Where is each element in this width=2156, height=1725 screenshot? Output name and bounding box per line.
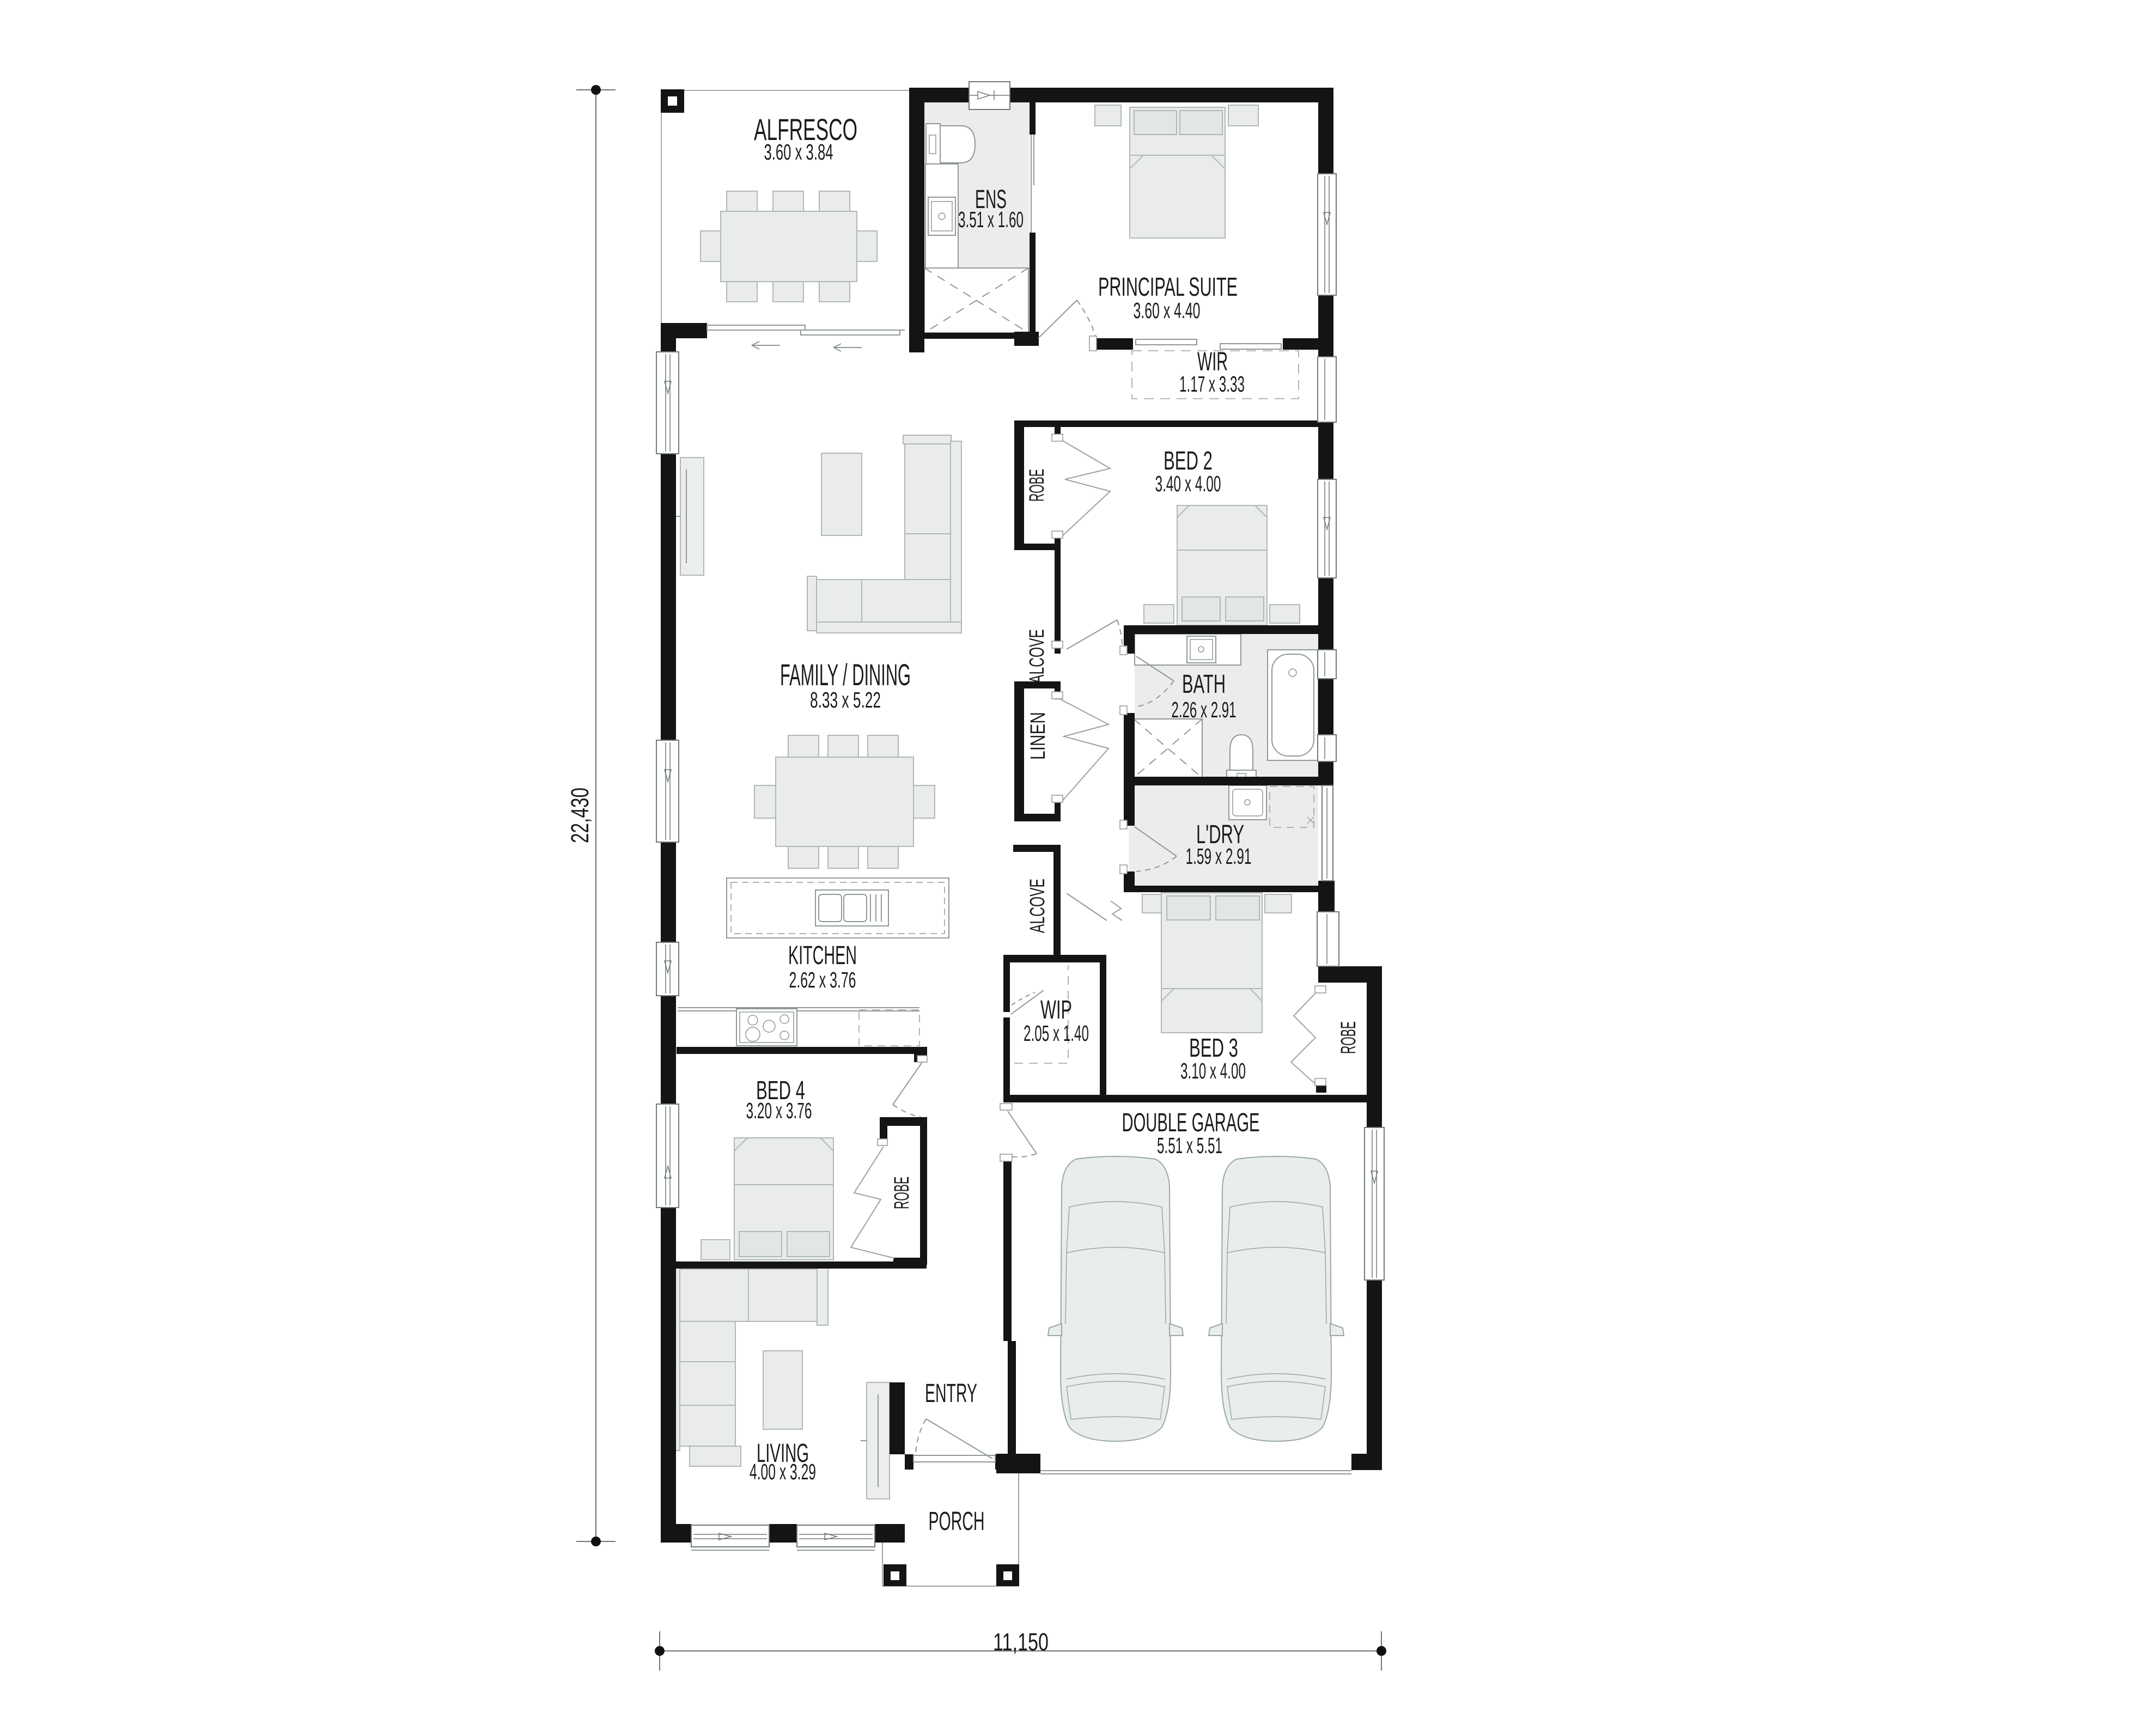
svg-text:ROBE: ROBE [1026,469,1049,502]
svg-text:1.17 x 3.33: 1.17 x 3.33 [1179,371,1245,397]
svg-text:BATH: BATH [1182,670,1226,699]
svg-text:PORCH: PORCH [929,1507,985,1536]
svg-text:2.26 x 2.91: 2.26 x 2.91 [1172,697,1237,722]
svg-text:ENTRY: ENTRY [925,1379,977,1408]
svg-text:ALCOVE: ALCOVE [1026,629,1049,684]
svg-text:2.62 x 3.76: 2.62 x 3.76 [789,967,856,992]
svg-text:11,150: 11,150 [993,1628,1049,1656]
svg-text:LINEN: LINEN [1027,712,1050,760]
svg-text:5.51 x 5.51: 5.51 x 5.51 [1157,1133,1222,1158]
svg-text:KITCHEN: KITCHEN [788,941,857,970]
svg-text:ALCOVE: ALCOVE [1026,879,1049,933]
svg-text:3.60 x 3.84: 3.60 x 3.84 [764,139,833,164]
svg-text:8.33 x 5.22: 8.33 x 5.22 [810,687,881,712]
svg-text:3.40 x 4.00: 3.40 x 4.00 [1155,471,1221,496]
svg-text:ROBE: ROBE [891,1177,913,1209]
svg-text:3.10 x 4.00: 3.10 x 4.00 [1180,1058,1246,1083]
svg-text:22,430: 22,430 [566,788,594,843]
svg-text:FAMILY / DINING: FAMILY / DINING [780,657,911,692]
svg-text:3.60 x 4.40: 3.60 x 4.40 [1134,298,1201,323]
svg-text:3.51 x 1.60: 3.51 x 1.60 [958,207,1024,232]
svg-text:ROBE: ROBE [1337,1021,1360,1054]
svg-text:3.20 x 3.76: 3.20 x 3.76 [746,1098,812,1123]
svg-text:2.05 x 1.40: 2.05 x 1.40 [1024,1021,1089,1046]
svg-text:1.59 x 2.91: 1.59 x 2.91 [1186,844,1252,869]
svg-text:4.00 x 3.29: 4.00 x 3.29 [750,1459,816,1484]
